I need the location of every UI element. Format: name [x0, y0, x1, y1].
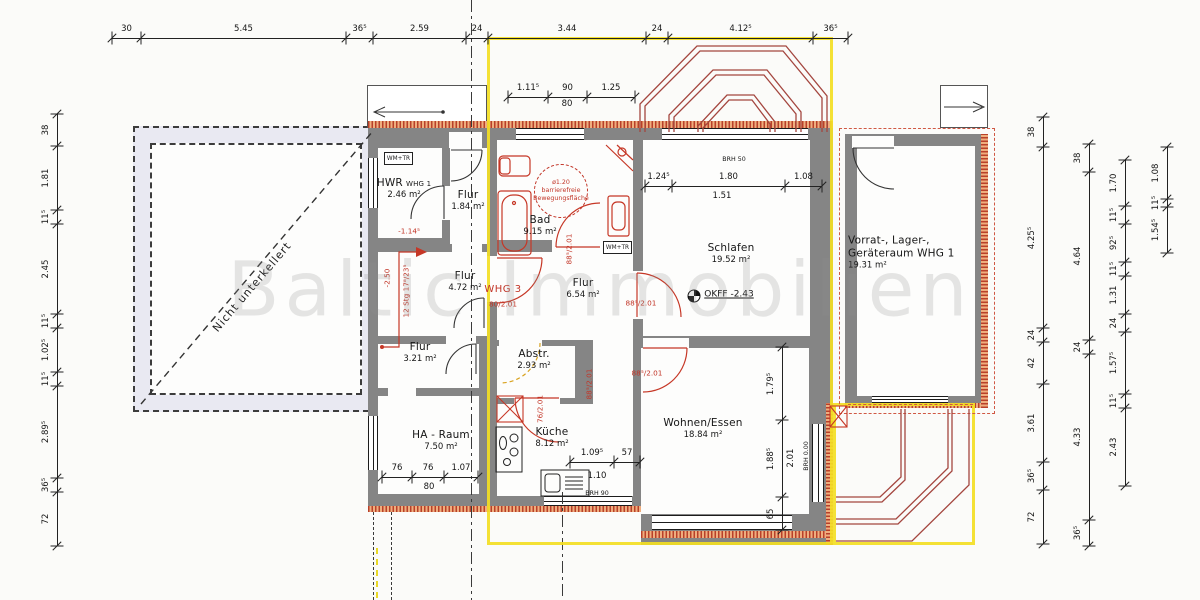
- dim-label: 1.07: [452, 464, 471, 473]
- dim-ext: [1037, 328, 1050, 329]
- dim-ext: [1037, 462, 1050, 463]
- dim-label: 24: [1028, 330, 1037, 341]
- dim-label: 1.31: [1110, 286, 1119, 305]
- exterior-steps-top-icon: [640, 46, 827, 132]
- annotation-label: 88⁵/2.01: [626, 299, 657, 306]
- dim-label: 36⁵: [1074, 526, 1083, 540]
- door-swing-red-icons: [497, 203, 687, 442]
- dim-chain-right-inner2: [1167, 147, 1168, 253]
- dim-ext: [373, 32, 374, 45]
- room-area: 19.31 m²: [848, 261, 955, 272]
- dim-label: 5.45: [234, 25, 253, 34]
- dim-label: 36⁵: [42, 478, 51, 492]
- dim-ext: [141, 32, 142, 45]
- room-area: 2.46 m²: [377, 190, 431, 201]
- annotation-label: ø1.20: [552, 180, 570, 186]
- dim-label: 4.33: [1074, 428, 1083, 447]
- dim-label: 24: [1074, 342, 1083, 353]
- room-area: 2.93 m²: [517, 361, 550, 372]
- annotation-label: 88⁵/2.01: [565, 234, 572, 265]
- dim-ext: [112, 32, 113, 45]
- dim-ext: [51, 372, 64, 373]
- dim-ext: [51, 492, 64, 493]
- dim-label: 36⁵: [352, 25, 366, 34]
- annotation-label: 88⁵/2.01: [585, 369, 592, 400]
- dim-label: 1.11⁵: [517, 84, 539, 93]
- dim-ext: [1037, 490, 1050, 491]
- dim-label: 1.54⁵: [1152, 219, 1161, 241]
- dim-label: 92⁵: [1110, 236, 1119, 250]
- dim-label: 2.43: [1110, 438, 1119, 457]
- dim-label: 11⁵: [1152, 196, 1161, 210]
- annotation-label: -2.50: [383, 269, 390, 288]
- annotation-label: 12 Stg 17⁸/23⁵: [402, 265, 409, 318]
- dim-ext: [776, 497, 789, 498]
- dim-ext: [488, 32, 489, 45]
- annotation-label: BRH 0.00: [804, 441, 810, 470]
- dim-ext: [1037, 117, 1050, 118]
- dim-ext: [466, 32, 467, 45]
- dim-ext: [640, 456, 641, 469]
- room-label: HA - Raum7.50 m²: [412, 429, 470, 453]
- dim-label: 11⁵: [42, 314, 51, 328]
- room-label: Vorrat-, Lager-,Geräteraum WHG 119.31 m²: [848, 235, 955, 272]
- dim-ext: [1037, 544, 1050, 545]
- dim-ext: [1161, 147, 1174, 148]
- room-name: Küche: [535, 426, 568, 439]
- room-name: HA - Raum: [412, 429, 470, 442]
- dim-chain-ha-raum: [382, 477, 478, 478]
- dim-label: 1.08: [794, 173, 813, 182]
- dim-ext: [382, 471, 383, 484]
- washer-dryer-box: WM+TR: [384, 152, 413, 165]
- annotation-label: 88⁵/2.01: [632, 369, 663, 376]
- dim-label: 76: [392, 464, 403, 473]
- room-area: 3.21 m²: [403, 354, 436, 365]
- dim-label: 11⁵: [1110, 394, 1119, 408]
- room-name: Abstr.: [517, 348, 550, 361]
- room-label: Bad9.15 m²: [523, 214, 556, 238]
- dim-ext: [444, 471, 445, 484]
- dim-ext: [1161, 253, 1174, 254]
- washer-dryer-box: WM+TR: [603, 241, 632, 254]
- dim-label: 2.45: [42, 260, 51, 279]
- dim-ext: [1119, 394, 1132, 395]
- room-name-2: Geräteraum WHG 1: [848, 248, 955, 261]
- dim-ext: [51, 224, 64, 225]
- dim-label: 38: [1028, 127, 1037, 138]
- room-name: HWRWHG 1: [377, 177, 431, 190]
- room-label: Flur6.54 m²: [566, 277, 599, 301]
- dim-label: 1.02⁵: [42, 339, 51, 361]
- dim-label: 1.79⁵: [767, 372, 776, 394]
- dim-ext: [785, 180, 786, 193]
- terrace-diagonal-icon: [141, 131, 373, 404]
- dim-ext: [1161, 207, 1174, 208]
- dim-label: 1.88⁵: [767, 447, 776, 469]
- annotation-label: 80: [424, 483, 435, 492]
- dim-label: 11⁵: [1110, 262, 1119, 276]
- room-name: Flur: [448, 270, 481, 283]
- dim-ext: [1083, 340, 1096, 341]
- dim-label: 57: [622, 449, 633, 458]
- room-name: Flur: [451, 189, 484, 202]
- dim-chain-right-outer: [1043, 117, 1044, 544]
- room-name: Flur: [566, 277, 599, 290]
- dim-ext: [822, 180, 823, 193]
- dim-label: 24: [652, 25, 663, 34]
- dim-label: 1.08: [1152, 164, 1161, 183]
- room-label: Flur4.72 m²: [448, 270, 481, 294]
- dim-ext: [776, 347, 789, 348]
- dim-ext: [1083, 520, 1096, 521]
- dim-ext: [570, 456, 571, 469]
- dim-ext: [51, 478, 64, 479]
- dim-label: 38: [42, 125, 51, 136]
- dim-label: 11⁵: [1110, 208, 1119, 222]
- annotation-label: barrierefreie: [541, 188, 580, 194]
- room-area: 8.12 m²: [535, 439, 568, 450]
- dim-ext: [51, 210, 64, 211]
- dim-ext: [1119, 262, 1132, 263]
- dim-ext: [51, 146, 64, 147]
- room-name: Vorrat-, Lager-,: [848, 235, 955, 248]
- dim-label: 4.25⁵: [1028, 226, 1037, 248]
- dim-label: 72: [1028, 512, 1037, 523]
- room-area: 9.15 m²: [523, 227, 556, 238]
- dim-label: 4.64: [1074, 247, 1083, 266]
- dim-label: 1.09⁵: [581, 449, 603, 458]
- room-label: Wohnen/Essen18.84 m²: [663, 417, 742, 441]
- dim-ext: [1119, 276, 1132, 277]
- annotation-label: 1.51: [713, 192, 732, 201]
- dim-ext: [51, 328, 64, 329]
- room-area: 4.72 m²: [448, 283, 481, 294]
- dim-label: 42: [1028, 358, 1037, 369]
- dim-chain-right-mid: [1089, 144, 1090, 546]
- dim-ext: [646, 32, 647, 45]
- dim-ext: [1037, 147, 1050, 148]
- room-name: Schlafen: [708, 242, 755, 255]
- dim-ext: [672, 180, 673, 193]
- annotation-label: Bewegungsfläche: [533, 196, 589, 202]
- dim-label: 2.59: [410, 25, 429, 34]
- dim-label: 72: [42, 514, 51, 525]
- dim-ext: [776, 420, 789, 421]
- room-suffix: WHG 1: [406, 180, 431, 188]
- dim-label: 1.70: [1110, 174, 1119, 193]
- room-name: Wohnen/Essen: [663, 417, 742, 430]
- dim-ext: [848, 32, 849, 45]
- dim-label: 3.44: [558, 25, 577, 34]
- dim-ext: [478, 471, 479, 484]
- dim-label: 24: [1110, 318, 1119, 329]
- dim-ext: [412, 471, 413, 484]
- room-area: 18.84 m²: [663, 430, 742, 441]
- dim-ext: [1119, 332, 1132, 333]
- dim-chain-left: [57, 114, 58, 546]
- room-area: 19.52 m²: [708, 255, 755, 266]
- dim-ext: [346, 32, 347, 45]
- annotation-label: BRH 90: [585, 491, 608, 497]
- dim-ext: [51, 114, 64, 115]
- dim-chain-top: [112, 38, 848, 39]
- annotation-label: 80: [562, 100, 573, 109]
- dim-ext: [1119, 224, 1132, 225]
- dim-label: 1.81: [42, 169, 51, 188]
- room-name: Bad: [523, 214, 556, 227]
- dim-label: 90: [562, 84, 573, 93]
- dim-ext: [587, 91, 588, 104]
- dim-ext: [645, 180, 646, 193]
- annotation-label: BRH 50: [722, 157, 745, 163]
- dim-chain-wohnen: [782, 347, 783, 530]
- annotation-label: 76/2.01: [536, 395, 543, 423]
- dim-ext: [1119, 314, 1132, 315]
- dim-ext: [548, 91, 549, 104]
- okff-level-icon: [688, 290, 700, 302]
- dim-label: 3.61: [1028, 414, 1037, 433]
- annotation-label: OKFF -2.43: [704, 291, 754, 300]
- dim-label: 36⁵: [823, 25, 837, 34]
- dim-label: 38: [1074, 153, 1083, 164]
- dim-label: 65: [767, 508, 776, 519]
- dim-ext: [1083, 546, 1096, 547]
- annotation-label: 2.01: [787, 449, 796, 468]
- dim-chain-kueche: [570, 462, 640, 463]
- annotation-label: -1.14⁵: [398, 227, 420, 234]
- annotation-label: 1.10: [588, 472, 607, 481]
- dim-ext: [1083, 354, 1096, 355]
- dim-label: 1.80: [719, 173, 738, 182]
- dim-ext: [51, 546, 64, 547]
- dim-chain-right-inner: [1125, 160, 1126, 486]
- room-area: 6.54 m²: [566, 290, 599, 301]
- dim-ext: [51, 386, 64, 387]
- dim-label: 36⁵: [1028, 469, 1037, 483]
- dim-ext: [1161, 199, 1174, 200]
- dim-label: 1.24⁵: [647, 173, 669, 182]
- dim-label: 30: [121, 25, 132, 34]
- room-label: Abstr.2.93 m²: [517, 348, 550, 372]
- dim-ext: [1037, 342, 1050, 343]
- dim-label: 2.89⁵: [42, 421, 51, 443]
- dim-ext: [614, 456, 615, 469]
- dim-label: 4.12⁵: [729, 25, 751, 34]
- dim-label: 76: [423, 464, 434, 473]
- dim-ext: [813, 32, 814, 45]
- floor-plan: Nicht unterkellert: [0, 0, 1200, 600]
- room-label: Flur3.21 m²: [403, 341, 436, 365]
- dim-ext: [1083, 172, 1096, 173]
- room-label: HWRWHG 12.46 m²: [377, 177, 431, 201]
- exterior-steps-bottom-icon: [836, 409, 969, 541]
- room-area: 7.50 m²: [412, 442, 470, 453]
- room-name: Flur: [403, 341, 436, 354]
- dim-ext: [1119, 408, 1132, 409]
- dim-ext: [635, 91, 636, 104]
- dim-ext: [1083, 144, 1096, 145]
- dim-label: 11⁵: [42, 372, 51, 386]
- dim-ext: [1037, 384, 1050, 385]
- dim-label: 1.25: [602, 84, 621, 93]
- dim-ext: [1119, 486, 1132, 487]
- annotation-label: 80/2.01: [489, 300, 517, 307]
- dim-label: 11⁵: [42, 210, 51, 224]
- plan-linework: [0, 0, 1200, 600]
- dim-ext: [776, 530, 789, 531]
- dim-ext: [51, 314, 64, 315]
- room-label: Flur1.84 m²: [451, 189, 484, 213]
- room-area: 1.84 m²: [451, 202, 484, 213]
- annotation-label: WHG 3: [484, 285, 521, 295]
- dim-label: 1.57⁵: [1110, 352, 1119, 374]
- room-label: Schlafen19.52 m²: [708, 242, 755, 266]
- dim-ext: [668, 32, 669, 45]
- dim-ext: [508, 91, 509, 104]
- dim-ext: [1119, 160, 1132, 161]
- room-label: Küche8.12 m²: [535, 426, 568, 450]
- dim-label: 24: [472, 25, 483, 34]
- dim-ext: [1119, 206, 1132, 207]
